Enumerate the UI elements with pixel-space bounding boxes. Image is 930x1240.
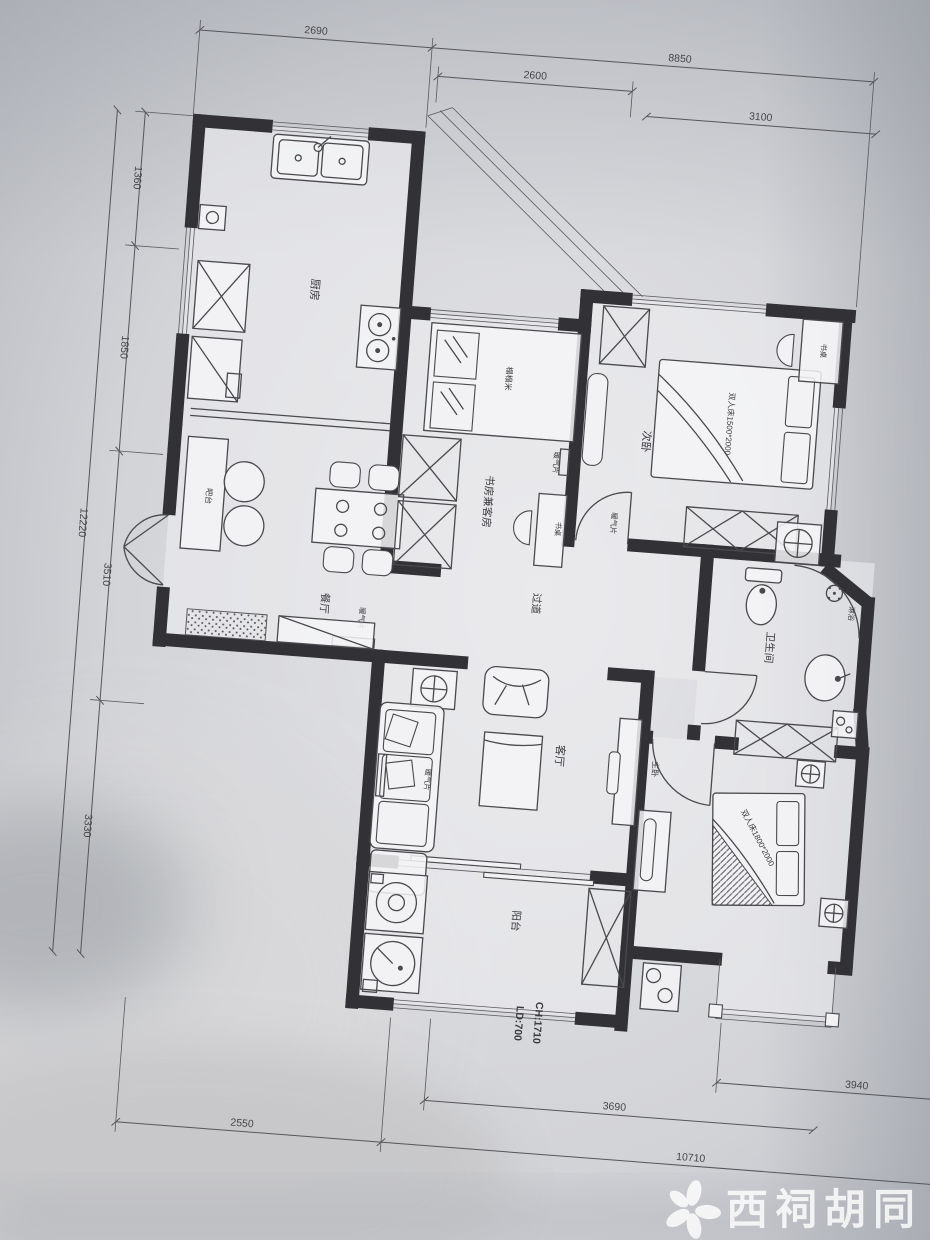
photo-of-floor-plan: 厨房 吧台 餐厅 暖气片: [0, 0, 930, 1240]
radiator-label: 暖气片: [551, 451, 562, 474]
dim-top-2600: 2600: [523, 69, 547, 83]
bar-counter-label: 吧台: [203, 488, 214, 505]
stove-icon: [356, 305, 401, 370]
nightstand-icon: [796, 760, 826, 788]
washer-box-icon: [831, 711, 858, 739]
dim-left-3330: 3330: [80, 814, 94, 838]
dim-left-3510: 3510: [100, 562, 114, 586]
radiator-label: 暖气片: [608, 512, 619, 535]
dining-label: 餐厅: [317, 592, 332, 614]
dim-top-3100: 3100: [749, 110, 773, 124]
ceiling-lamp-icon: [775, 522, 822, 565]
kitchen-label: 厨房: [307, 278, 322, 301]
fridge-icon: [193, 261, 250, 333]
cabinet-icon: [187, 336, 244, 402]
dim-left-1360: 1360: [130, 166, 144, 190]
shower-label: 淋浴: [846, 606, 856, 622]
doormat-icon: [185, 609, 267, 641]
bed-1500-icon: [651, 359, 822, 489]
corridor-label: 过道: [529, 593, 544, 615]
bathroom-label: 卫生间: [762, 631, 777, 663]
dim-left-1850: 1850: [117, 335, 131, 359]
wall-box-icon: [199, 205, 227, 231]
dim-bottom-3940: 3940: [845, 1079, 869, 1093]
dim-top-8850: 8850: [668, 52, 692, 66]
tatami-bed-icon: [424, 323, 582, 442]
side-table-icon: [411, 668, 458, 709]
radiator-label: 暖气片: [422, 768, 433, 791]
tv-bench-icon: [633, 810, 671, 892]
double-sink-icon: [271, 132, 370, 185]
nightstand-icon: [819, 898, 849, 928]
bedroom-desk-label: 书桌: [818, 343, 828, 359]
dim-bottom-3690: 3690: [602, 1100, 626, 1114]
study-desk-label: 书桌: [553, 521, 563, 537]
mop-basin-icon: [360, 933, 422, 995]
tatami-label: 榻榻米: [503, 366, 515, 391]
washing-machine-icon: [365, 872, 427, 934]
watermark-text: 西祠胡同: [726, 1186, 922, 1233]
dim-bottom-10710: 10710: [676, 1151, 706, 1165]
armchair-icon: [482, 666, 549, 719]
coffee-table-icon: [479, 732, 543, 810]
dim-left-12220: 12220: [76, 507, 90, 537]
dim-top-2690: 2690: [304, 24, 328, 38]
stool-table-icon: [640, 963, 681, 1012]
balcony-label: 阳台: [509, 910, 524, 932]
dim-bottom-2550: 2550: [230, 1117, 254, 1131]
floor-plan-drawing: 厨房 吧台 餐厅 暖气片: [0, 0, 930, 1240]
